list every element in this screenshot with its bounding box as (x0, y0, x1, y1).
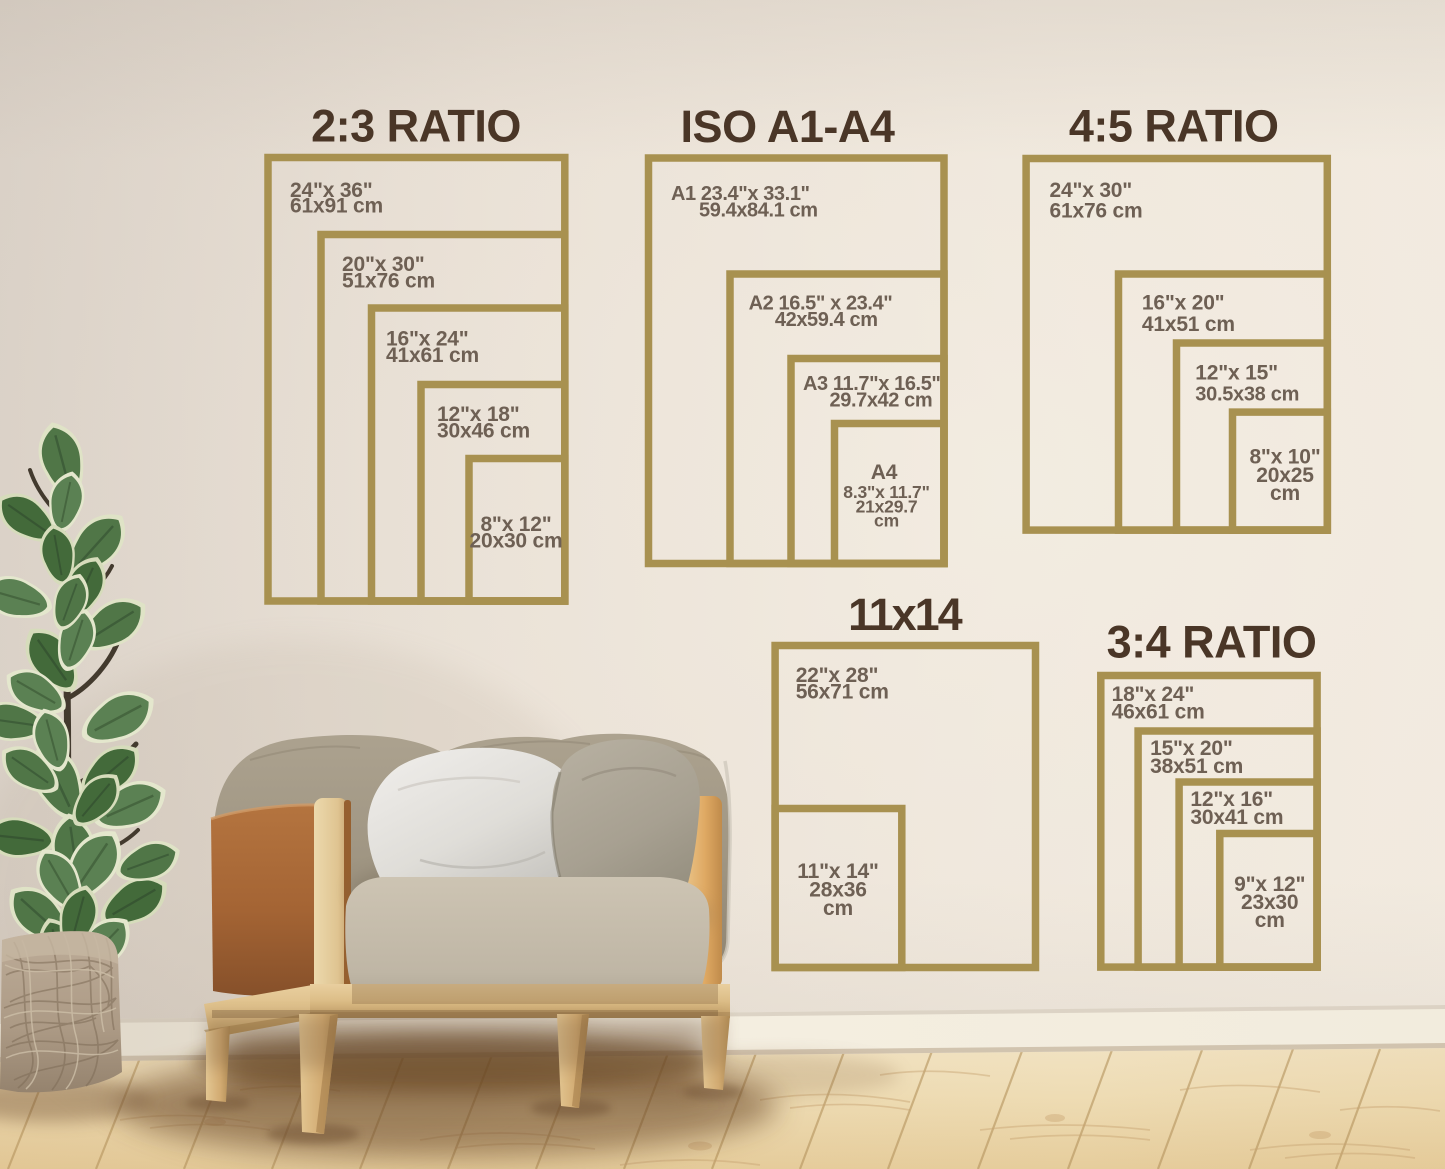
svg-text:59.4x84.1 cm: 59.4x84.1 cm (699, 200, 818, 222)
svg-text:3:4 RATIO: 3:4 RATIO (1107, 617, 1317, 668)
svg-text:A4: A4 (871, 461, 898, 484)
svg-text:24"x 30": 24"x 30" (1050, 179, 1133, 202)
svg-text:ISO A1-A4: ISO A1-A4 (681, 101, 895, 152)
svg-text:30x46 cm: 30x46 cm (437, 420, 530, 443)
svg-text:cm: cm (1270, 482, 1300, 505)
svg-text:38x51 cm: 38x51 cm (1150, 755, 1243, 778)
svg-text:cm: cm (1255, 909, 1285, 932)
svg-text:46x61 cm: 46x61 cm (1112, 701, 1205, 724)
svg-text:30x41 cm: 30x41 cm (1190, 806, 1283, 829)
svg-text:61x76 cm: 61x76 cm (1050, 200, 1143, 223)
svg-text:4:5 RATIO: 4:5 RATIO (1069, 101, 1279, 152)
svg-text:61x91 cm: 61x91 cm (290, 195, 383, 218)
svg-text:cm: cm (874, 511, 899, 531)
svg-text:41x61 cm: 41x61 cm (386, 344, 479, 367)
svg-text:11x14: 11x14 (848, 589, 963, 640)
svg-text:41x51 cm: 41x51 cm (1142, 313, 1235, 336)
svg-text:16"x 20": 16"x 20" (1142, 292, 1225, 315)
svg-text:20x30 cm: 20x30 cm (470, 530, 563, 553)
svg-text:29.7x42 cm: 29.7x42 cm (830, 390, 933, 412)
svg-text:12"x 15": 12"x 15" (1195, 362, 1278, 385)
svg-text:51x76 cm: 51x76 cm (342, 270, 435, 293)
svg-text:2:3 RATIO: 2:3 RATIO (311, 101, 521, 152)
svg-text:cm: cm (823, 897, 853, 920)
svg-text:30.5x38 cm: 30.5x38 cm (1195, 384, 1299, 406)
svg-text:56x71 cm: 56x71 cm (796, 681, 889, 704)
svg-text:42x59.4 cm: 42x59.4 cm (775, 309, 878, 331)
